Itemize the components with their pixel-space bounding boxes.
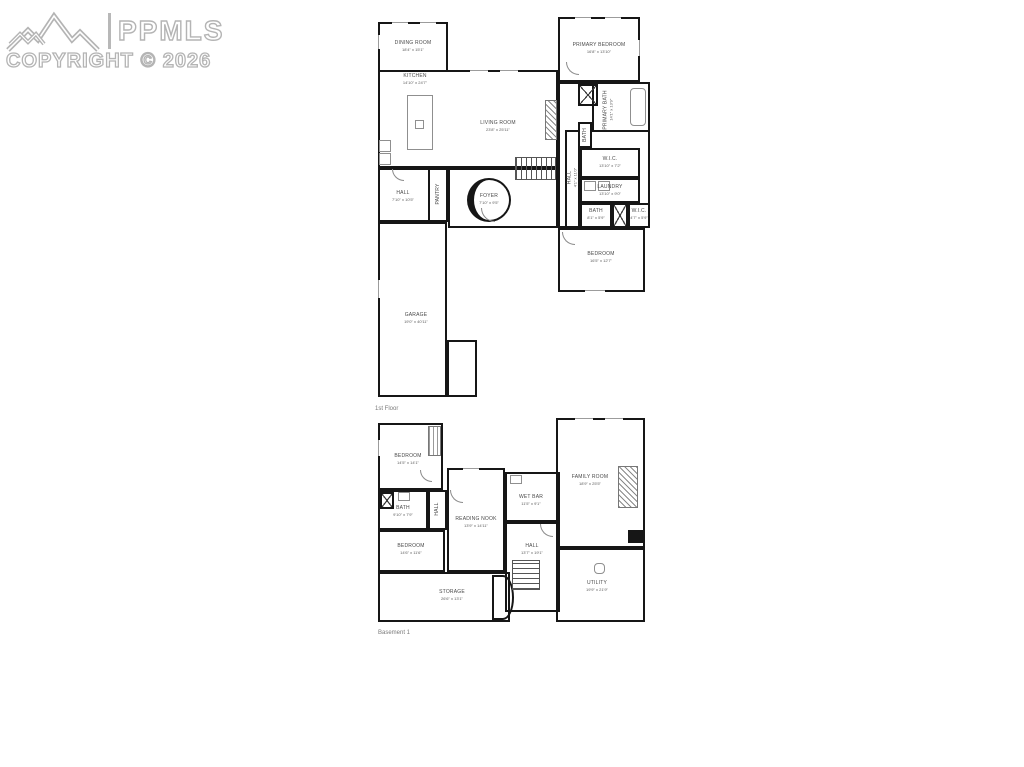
basement-shower bbox=[380, 492, 394, 509]
room-label-foyer: FOYER7'10" x 9'5" bbox=[479, 193, 499, 205]
room-label-garage: GARAGE19'0" x 40'11" bbox=[404, 312, 428, 324]
room-label-utility: UTILITY19'9" x 21'9" bbox=[586, 580, 608, 592]
ppmls-watermark: PPMLS COPYRIGHT © 2026 bbox=[6, 8, 224, 73]
room-label-hall-strip: HALL4'1" x 11'0" bbox=[567, 168, 578, 188]
window bbox=[470, 68, 488, 73]
room-label-pantry: PANTRY bbox=[435, 183, 441, 204]
window bbox=[637, 40, 642, 56]
room-label-hall1: HALL7'10" x 10'5" bbox=[392, 190, 414, 202]
watermark-divider bbox=[108, 13, 111, 49]
staircase-up bbox=[515, 157, 556, 180]
garage-walls bbox=[378, 222, 447, 397]
primary-shower bbox=[578, 84, 598, 106]
kitchen-sink bbox=[415, 120, 424, 129]
window bbox=[585, 288, 605, 293]
floorplan-page: PPMLS COPYRIGHT © 2026 bbox=[0, 0, 1024, 767]
mountain-range-icon bbox=[6, 8, 102, 54]
watermark-copyright: COPYRIGHT © 2026 bbox=[6, 50, 224, 73]
window bbox=[420, 20, 436, 25]
room-label-storage: STORAGE26'6" x 13'1" bbox=[439, 589, 465, 601]
watermark-top-row: PPMLS bbox=[6, 8, 224, 54]
pantry-divider-wall bbox=[428, 168, 430, 222]
room-label-dining: DINING ROOM18'4" x 15'1" bbox=[395, 40, 432, 52]
basement-sink bbox=[398, 492, 410, 501]
window bbox=[605, 416, 623, 421]
window bbox=[376, 440, 381, 456]
garage-extension-walls bbox=[447, 340, 477, 397]
shower-stall bbox=[612, 203, 628, 228]
primary-bathtub bbox=[630, 88, 646, 126]
room-label-family-room: FAMILY ROOM18'9" x 25'5" bbox=[572, 474, 608, 486]
room-label-wet-bar: WET BAR11'5" x 9'1" bbox=[519, 494, 543, 506]
basement-stairs-hatch bbox=[618, 466, 638, 508]
room-label-basement-hall: HALL13'7" x 19'1" bbox=[521, 543, 543, 555]
room-label-basement-bath: BATH9'10" x 7'9" bbox=[393, 505, 413, 517]
fireplace-hatch bbox=[545, 100, 557, 140]
window bbox=[376, 35, 381, 49]
first-floor-tag: 1st Floor bbox=[375, 406, 398, 412]
watermark-brand: PPMLS bbox=[118, 15, 224, 47]
room-label-basement-hall-strip: HALL bbox=[434, 502, 440, 515]
window bbox=[463, 466, 479, 471]
storage-curved-wall bbox=[492, 575, 514, 620]
room-label-primary-bedroom: PRIMARY BEDROOM16'8" x 13'10" bbox=[573, 42, 626, 54]
basement-staircase bbox=[512, 560, 540, 590]
kitchen-appliance bbox=[379, 140, 391, 152]
chimney-block bbox=[628, 530, 644, 543]
window bbox=[605, 15, 621, 20]
room-label-wic2: W.I.C.4'7" x 5'9" bbox=[630, 208, 648, 220]
room-label-bath2: BATH8'1" x 5'9" bbox=[587, 208, 605, 220]
kitchen-appliance bbox=[379, 153, 391, 165]
wet-bar-sink bbox=[510, 475, 522, 484]
room-label-kitchen: KITCHEN14'10" x 24'7" bbox=[403, 73, 427, 85]
laundry-machine bbox=[584, 181, 596, 191]
window bbox=[575, 15, 591, 20]
window bbox=[500, 68, 518, 73]
room-label-laundry: LAUNDRY13'10" x 9'0" bbox=[597, 184, 622, 196]
basement-floor-tag: Basement 1 bbox=[378, 630, 410, 636]
room-label-wic1: W.I.C.13'10" x 7'2" bbox=[599, 156, 621, 168]
room-label-basement-bedroom2: BEDROOM14'6" x 11'6" bbox=[397, 543, 424, 555]
room-label-living: LIVING ROOM23'8" x 25'11" bbox=[480, 120, 516, 132]
window bbox=[575, 416, 593, 421]
room-label-small-bath: BATH bbox=[582, 128, 588, 142]
room-label-reading-nook: READING NOOK13'9" x 14'11" bbox=[455, 516, 496, 528]
basement-closet-hatch bbox=[428, 426, 441, 456]
room-label-primary-bath: PRIMARY BATH14'1" x 13'9" bbox=[603, 90, 614, 129]
window bbox=[376, 280, 381, 298]
utility-equipment bbox=[594, 563, 605, 574]
room-label-bedroom1: BEDROOM16'5" x 12'7" bbox=[587, 251, 614, 263]
window bbox=[392, 20, 408, 25]
room-label-basement-bedroom1: BEDROOM14'5" x 14'1" bbox=[394, 453, 421, 465]
